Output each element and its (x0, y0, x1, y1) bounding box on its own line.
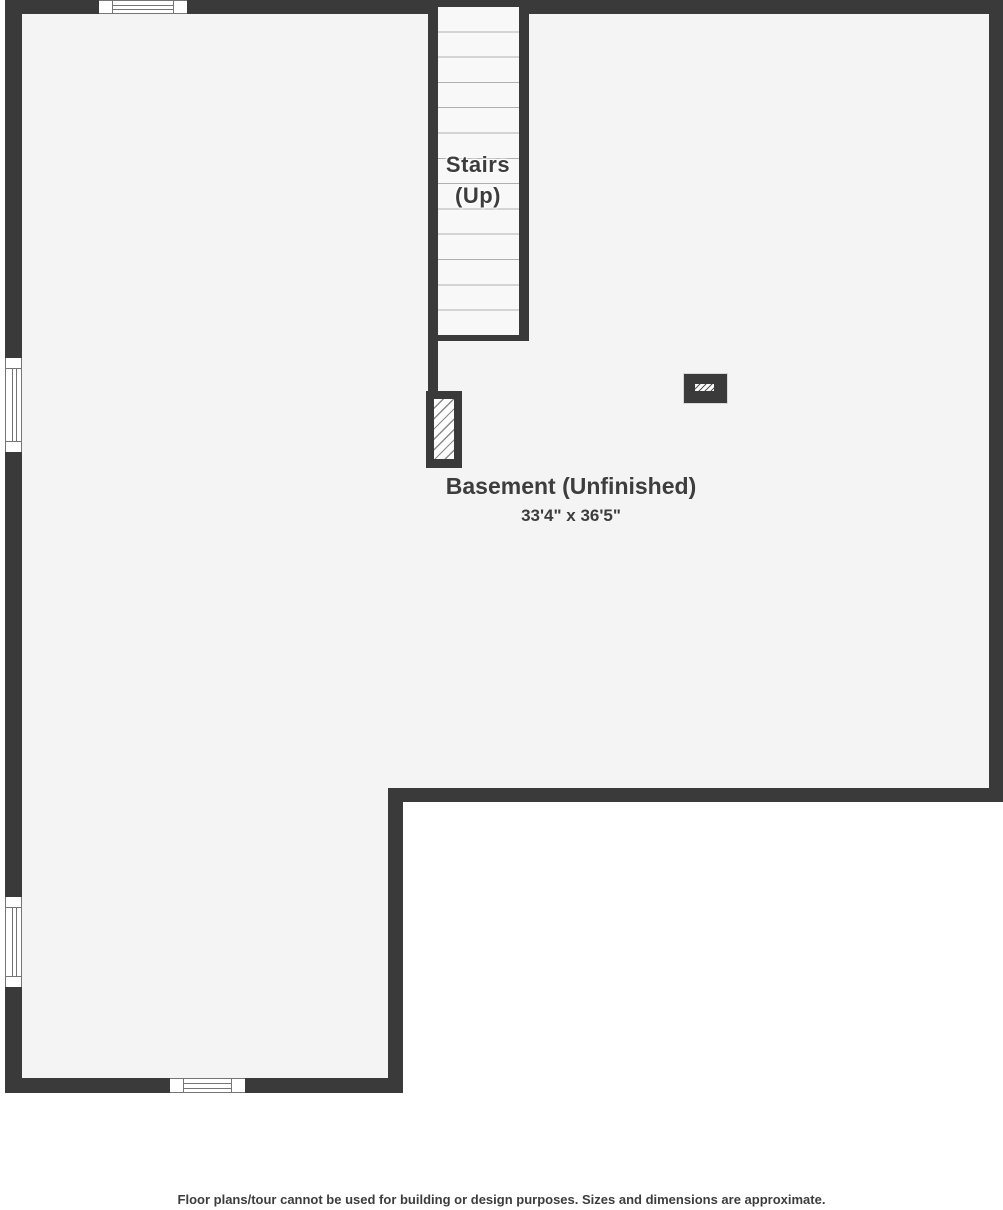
window-sill-line (6, 976, 21, 977)
hatched-column (426, 391, 462, 468)
floor-area-lower-left (22, 788, 388, 1078)
stairs-label: Stairs (Up) (398, 149, 558, 211)
window-sill-line (6, 368, 21, 369)
window-left-upper (5, 358, 22, 452)
support-post (684, 374, 727, 403)
window-pane-line (12, 369, 13, 441)
stairs-label-line2: (Up) (398, 180, 558, 211)
window-sill-line (6, 441, 21, 442)
window-pane-line (113, 5, 173, 6)
floorplan-canvas: Stairs (Up) Basement (Unfinished) 33'4" … (0, 0, 1003, 1210)
window-pane-line (12, 908, 13, 976)
room-dimensions-label: 33'4" x 36'5" (521, 506, 621, 526)
window-bottom (170, 1078, 245, 1093)
window-pane-line (184, 1088, 231, 1089)
hatched-column-fill (434, 399, 454, 459)
window-pane-line (16, 369, 17, 441)
window-left-lower (5, 897, 22, 987)
window-sill-line (231, 1079, 232, 1092)
window-pane-line (113, 9, 173, 10)
window-sill-line (173, 1, 174, 13)
support-post-hatch (695, 384, 714, 391)
footer-disclaimer: Floor plans/tour cannot be used for buil… (0, 1192, 1003, 1207)
stair-bottom-edge (428, 335, 529, 341)
wall-right (989, 0, 1003, 802)
wall-middle-vertical (388, 788, 403, 1093)
window-pane-line (16, 908, 17, 976)
window-top (99, 0, 187, 14)
window-sill-line (112, 1, 113, 13)
window-pane-line (184, 1083, 231, 1084)
wall-middle-horizontal (388, 788, 1003, 802)
window-sill-line (183, 1079, 184, 1092)
room-name-label: Basement (Unfinished) (446, 473, 696, 500)
window-sill-line (6, 907, 21, 908)
stairs-label-line1: Stairs (398, 149, 558, 180)
